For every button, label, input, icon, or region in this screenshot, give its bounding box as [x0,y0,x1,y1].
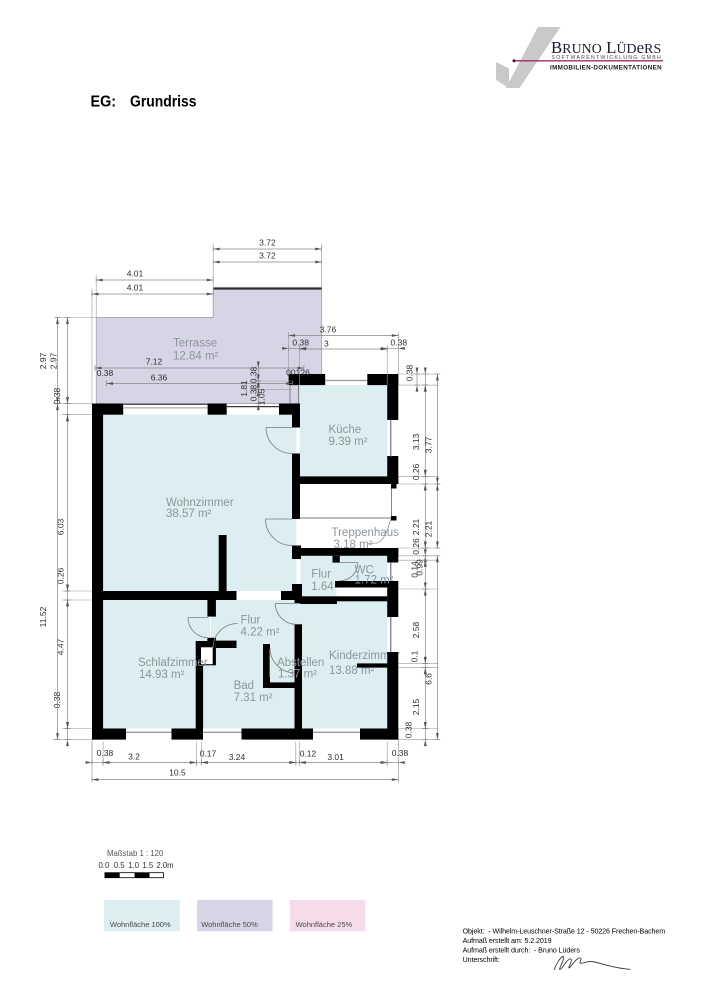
svg-text:2.21: 2.21 [424,520,434,537]
svg-text:2.97: 2.97 [49,352,59,369]
svg-text:Wohnfläche 100%: Wohnfläche 100% [110,920,171,929]
svg-text:1.0: 1.0 [128,861,140,870]
svg-text:7.12: 7.12 [146,357,163,367]
svg-text:1.05: 1.05 [257,388,267,405]
svg-text:6.03: 6.03 [56,518,66,535]
svg-text:4.47: 4.47 [56,638,66,655]
svg-text:3.13: 3.13 [411,433,421,450]
svg-text:0.38: 0.38 [392,748,409,758]
svg-text:Wohnfläche 25%: Wohnfläche 25% [296,920,353,929]
svg-text:3.01: 3.01 [327,752,344,762]
svg-text:0.38: 0.38 [405,364,415,381]
svg-text:11.52: 11.52 [38,606,48,627]
svg-text:0.38: 0.38 [52,691,62,708]
svg-text:38.57 m²: 38.57 m² [166,508,212,520]
svg-text:Aufmaß erstellt durch: - Brun: Aufmaß erstellt durch: - Bruno Lüders [463,947,581,955]
svg-text:3.77: 3.77 [424,436,434,453]
svg-text:0.38: 0.38 [97,368,114,378]
svg-text:0.0: 0.0 [98,861,110,870]
svg-text:9.39 m²: 9.39 m² [329,436,368,448]
svg-text:4.22 m²: 4.22 m² [241,627,280,639]
svg-text:7.31 m²: 7.31 m² [234,692,273,704]
svg-text:0.38: 0.38 [249,366,259,383]
svg-text:12.84 m²: 12.84 m² [173,351,219,363]
svg-text:1.5: 1.5 [142,861,154,870]
svg-text:Flur: Flur [311,569,331,581]
svg-text:0.1: 0.1 [410,650,420,662]
svg-text:4.01: 4.01 [127,269,144,279]
svg-text:0.38: 0.38 [292,338,309,348]
svg-text:3.72: 3.72 [259,238,276,248]
svg-text:2.21: 2.21 [411,518,421,535]
svg-text:0.5: 0.5 [114,861,126,870]
svg-text:6.6: 6.6 [424,673,434,685]
svg-text:0.99: 0.99 [415,559,425,576]
svg-text:0.38: 0.38 [391,338,408,348]
svg-text:Küche: Küche [329,424,362,436]
svg-text:1.72 m²: 1.72 m² [355,575,394,587]
svg-text:Wohnfläche 50%: Wohnfläche 50% [201,920,258,929]
svg-text:3.24: 3.24 [229,752,246,762]
svg-text:Treppenhaus: Treppenhaus [332,527,400,539]
svg-text:Aufmaß erstellt am: 5.2.2019: Aufmaß erstellt am: 5.2.2019 [463,937,552,945]
svg-text:IMMOBILIEN-DOKUMENTATIONEN: IMMOBILIEN-DOKUMENTATIONEN [550,65,662,72]
svg-text:Bad: Bad [234,680,254,692]
svg-text:0.17: 0.17 [200,749,217,759]
svg-text:Grundriss: Grundriss [130,94,197,111]
svg-text:Maßstab 1 : 120: Maßstab 1 : 120 [107,849,164,858]
svg-text:2.15: 2.15 [411,698,421,715]
svg-text:00126: 00126 [286,368,310,378]
svg-text:3.18 m²: 3.18 m² [334,539,373,551]
svg-text:2.0m: 2.0m [156,861,173,870]
svg-text:3.76: 3.76 [320,325,337,335]
svg-text:Schlafzimmer: Schlafzimmer [138,657,208,669]
svg-text:1.81: 1.81 [239,380,249,397]
svg-text:1.64: 1.64 [311,581,334,593]
svg-text:0.38: 0.38 [52,387,62,404]
svg-text:Unterschrift:: Unterschrift: [463,956,500,964]
svg-text:0.26: 0.26 [56,567,66,584]
svg-text:Abstellen: Abstellen [277,657,324,669]
svg-text:Terrasse: Terrasse [173,338,217,350]
svg-text:0.38: 0.38 [97,748,114,758]
svg-text:3: 3 [324,339,329,349]
svg-text:10.5: 10.5 [169,768,186,778]
svg-text:EG:: EG: [91,94,117,111]
svg-text:1.37 m²: 1.37 m² [278,669,317,681]
svg-text:0.38: 0.38 [404,721,414,738]
svg-text:3.72: 3.72 [259,251,276,261]
svg-text:2.58: 2.58 [411,621,421,638]
svg-text:0.26: 0.26 [411,463,421,480]
svg-text:Objekt: - Wilhelm-Leuschner-S: Objekt: - Wilhelm-Leuschner-Straße 12 - … [463,928,666,936]
svg-text:4.01: 4.01 [127,283,144,293]
svg-text:0.26: 0.26 [411,538,421,555]
svg-text:14.93 m²: 14.93 m² [139,669,185,681]
svg-text:Flur: Flur [241,615,261,627]
svg-text:6.36: 6.36 [151,373,168,383]
svg-text:2.97: 2.97 [38,352,48,369]
svg-text:3.2: 3.2 [128,752,140,762]
svg-text:0.12: 0.12 [300,749,317,759]
